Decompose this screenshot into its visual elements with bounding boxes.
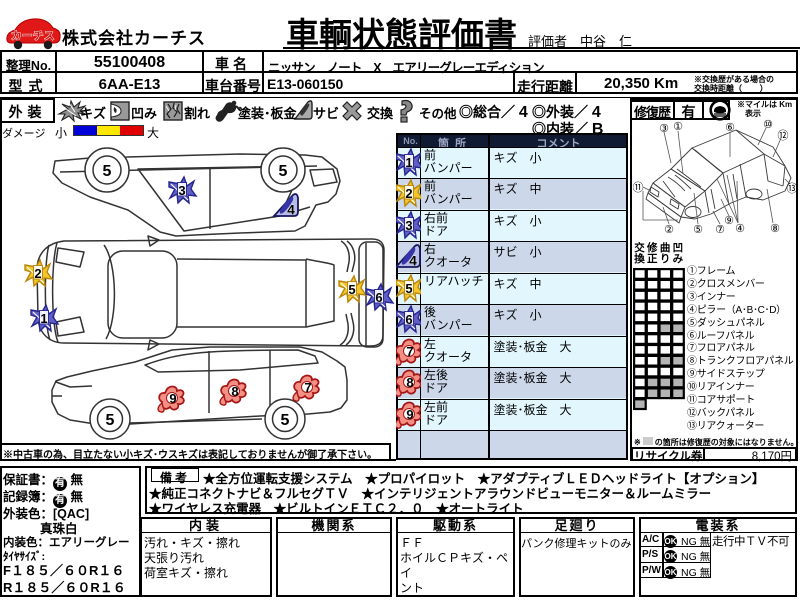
svg-text:3: 3 [405, 218, 412, 233]
svg-text:⑨: ⑨ [724, 215, 734, 227]
svg-text:6: 6 [375, 290, 382, 305]
svg-text:2: 2 [405, 186, 412, 201]
svg-text:5: 5 [279, 163, 288, 180]
svg-text:4: 4 [287, 202, 295, 218]
svg-text:7: 7 [304, 380, 311, 395]
svg-text:5: 5 [281, 412, 290, 429]
svg-text:⑫: ⑫ [778, 129, 789, 142]
svg-text:⑪: ⑪ [633, 181, 644, 194]
svg-text:1: 1 [40, 311, 47, 326]
svg-text:④: ④ [735, 223, 745, 235]
svg-text:6: 6 [405, 312, 412, 327]
svg-text:1: 1 [405, 155, 412, 170]
svg-text:9: 9 [169, 391, 176, 406]
svg-text:5: 5 [106, 412, 115, 429]
svg-text:2: 2 [34, 266, 41, 281]
svg-text:⑥: ⑥ [725, 122, 735, 134]
svg-text:5: 5 [405, 281, 412, 296]
svg-text:7: 7 [406, 344, 413, 359]
svg-text:②: ② [664, 224, 674, 236]
svg-text:③: ③ [659, 123, 669, 135]
svg-text:8: 8 [406, 375, 413, 390]
svg-text:8: 8 [231, 384, 238, 399]
svg-text:⑩: ⑩ [763, 119, 773, 131]
svg-text:⑧: ⑧ [770, 223, 780, 235]
svg-text:5: 5 [348, 282, 355, 297]
svg-text:3: 3 [178, 183, 185, 198]
svg-text:⑤: ⑤ [693, 224, 703, 236]
svg-text:4: 4 [409, 253, 417, 269]
svg-text:①: ① [673, 121, 683, 133]
svg-text:5: 5 [103, 163, 112, 180]
svg-text:カーチス: カーチス [11, 30, 55, 42]
svg-text:9: 9 [406, 407, 413, 422]
svg-text:⑬: ⑬ [787, 182, 798, 195]
